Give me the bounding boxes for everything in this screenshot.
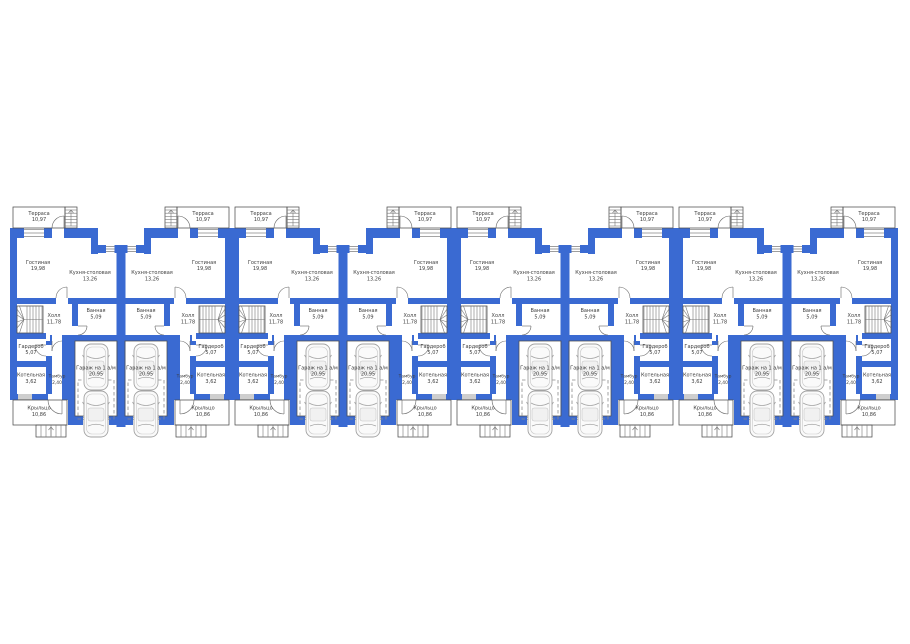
room-area-living: 19,98: [197, 266, 211, 272]
room-area-living: 19,98: [697, 266, 711, 272]
room-label-bath: Ванная: [580, 308, 599, 314]
room-label-boiler: Котельная: [461, 373, 489, 379]
room-area-boiler: 3,62: [469, 379, 480, 385]
unit-3: Терраса10,97Гостиная19,98Кухня-столовая1…: [232, 207, 343, 437]
room-label-hall: Холл: [48, 313, 61, 319]
room-label-porch: Крыльцо: [635, 406, 658, 412]
unit-7: Терраса10,97Гостиная19,98Кухня-столовая1…: [676, 207, 787, 437]
room-area-terrace: 10,97: [196, 217, 210, 223]
room-area-porch: 10,86: [698, 412, 712, 418]
room-label-tambour: Тамбур: [620, 373, 638, 380]
room-area-boiler: 3,62: [691, 379, 702, 385]
room-label-living: Гостиная: [636, 260, 660, 266]
room-label-bath: Ванная: [86, 308, 105, 314]
room-area-wardrobe: 5,07: [691, 350, 702, 356]
room-area-wardrobe: 5,07: [427, 350, 438, 356]
room-area-terrace: 10,97: [254, 217, 268, 223]
room-area-living: 19,98: [253, 266, 267, 272]
room-label-kitchen: Кухня-столовая: [353, 270, 395, 276]
room-area-boiler: 3,62: [427, 379, 438, 385]
room-area-hall: 11,78: [847, 320, 861, 326]
room-label-porch: Крыльцо: [857, 406, 880, 412]
room-area-living: 19,98: [31, 266, 45, 272]
room-area-porch: 10,86: [254, 412, 268, 418]
room-area-bath: 5,09: [362, 315, 373, 321]
room-area-kitchen: 13,26: [749, 277, 763, 283]
room-area-kitchen: 13,26: [145, 277, 159, 283]
floor-plan-drawing: Терраса10,97Гостиная19,98Кухня-столовая1…: [0, 0, 910, 644]
room-label-porch: Крыльцо: [249, 406, 272, 412]
room-area-living: 19,98: [475, 266, 489, 272]
room-label-garage: Гараж на 1 а/м: [298, 365, 338, 371]
room-area-hall: 11,78: [625, 320, 639, 326]
room-area-tambour: 2,40: [402, 380, 412, 386]
room-area-terrace: 10,97: [32, 217, 46, 223]
room-area-bath: 5,09: [140, 315, 151, 321]
room-label-terrace: Терраса: [191, 211, 213, 217]
room-label-terrace: Терраса: [413, 211, 435, 217]
room-label-kitchen: Кухня-столовая: [131, 270, 173, 276]
room-label-bath: Ванная: [358, 308, 377, 314]
room-area-porch: 10,86: [862, 412, 876, 418]
room-label-living: Гостиная: [414, 260, 438, 266]
room-label-bath: Ванная: [802, 308, 821, 314]
room-label-kitchen: Кухня-столовая: [575, 270, 617, 276]
room-label-hall: Холл: [182, 313, 195, 319]
room-area-kitchen: 13,26: [367, 277, 381, 283]
unit-1: Терраса10,97Гостиная19,98Кухня-столовая1…: [10, 207, 121, 437]
room-label-garage: Гараж на 1 а/м: [742, 365, 782, 371]
room-label-wardrobe: Гардероб: [240, 344, 265, 350]
room-area-hall: 11,78: [47, 320, 61, 326]
room-label-porch: Крыльцо: [413, 406, 436, 412]
room-area-wardrobe: 5,07: [205, 350, 216, 356]
room-label-kitchen: Кухня-столовая: [291, 270, 333, 276]
room-label-tambour: Тамбур: [398, 373, 416, 380]
room-area-garage: 20,95: [755, 372, 769, 378]
room-area-porch: 10,86: [640, 412, 654, 418]
room-area-tambour: 2,40: [718, 380, 728, 386]
room-label-wardrobe: Гардероб: [864, 344, 889, 350]
room-area-garage: 20,95: [805, 372, 819, 378]
room-label-hall: Холл: [492, 313, 505, 319]
room-area-garage: 20,95: [533, 372, 547, 378]
room-label-hall: Холл: [270, 313, 283, 319]
room-area-wardrobe: 5,07: [469, 350, 480, 356]
room-label-kitchen: Кухня-столовая: [513, 270, 555, 276]
room-label-hall: Холл: [404, 313, 417, 319]
floor-plan-page: Терраса10,97Гостиная19,98Кухня-столовая1…: [0, 0, 910, 644]
room-area-boiler: 3,62: [871, 379, 882, 385]
room-label-living: Гостиная: [858, 260, 882, 266]
room-area-wardrobe: 5,07: [25, 350, 36, 356]
room-label-boiler: Котельная: [683, 373, 711, 379]
room-area-kitchen: 13,26: [811, 277, 825, 283]
room-label-boiler: Котельная: [863, 373, 891, 379]
room-area-hall: 11,78: [181, 320, 195, 326]
room-area-kitchen: 13,26: [589, 277, 603, 283]
room-area-garage: 20,95: [311, 372, 325, 378]
room-label-living: Гостиная: [192, 260, 216, 266]
room-label-wardrobe: Гардероб: [684, 344, 709, 350]
car-icon: [577, 391, 604, 437]
room-area-porch: 10,86: [196, 412, 210, 418]
room-area-bath: 5,09: [90, 315, 101, 321]
car-icon: [799, 391, 826, 437]
room-area-wardrobe: 5,07: [247, 350, 258, 356]
room-label-garage: Гараж на 1 а/м: [348, 365, 388, 371]
car-icon: [355, 391, 382, 437]
room-area-kitchen: 13,26: [527, 277, 541, 283]
room-label-boiler: Котельная: [419, 373, 447, 379]
room-label-bath: Ванная: [752, 308, 771, 314]
unit-8: Терраса10,97Гостиная19,98Кухня-столовая1…: [787, 207, 898, 437]
car-icon: [305, 391, 332, 437]
car-icon: [527, 391, 554, 437]
room-area-boiler: 3,62: [649, 379, 660, 385]
room-label-boiler: Котельная: [197, 373, 225, 379]
room-area-porch: 10,86: [418, 412, 432, 418]
room-label-living: Гостиная: [248, 260, 272, 266]
unit-4: Терраса10,97Гостиная19,98Кухня-столовая1…: [343, 207, 454, 437]
room-label-tambour: Тамбур: [714, 373, 732, 380]
room-area-garage: 20,95: [583, 372, 597, 378]
room-label-wardrobe: Гардероб: [198, 344, 223, 350]
room-area-garage: 20,95: [89, 372, 103, 378]
room-area-bath: 5,09: [806, 315, 817, 321]
room-area-wardrobe: 5,07: [649, 350, 660, 356]
room-label-garage: Гараж на 1 а/м: [570, 365, 610, 371]
room-area-hall: 11,78: [403, 320, 417, 326]
room-label-garage: Гараж на 1 а/м: [520, 365, 560, 371]
room-area-garage: 20,95: [139, 372, 153, 378]
room-label-hall: Холл: [626, 313, 639, 319]
unit-5: Терраса10,97Гостиная19,98Кухня-столовая1…: [454, 207, 565, 437]
room-area-terrace: 10,97: [698, 217, 712, 223]
room-area-tambour: 2,40: [846, 380, 856, 386]
room-label-kitchen: Кухня-столовая: [735, 270, 777, 276]
room-area-terrace: 10,97: [640, 217, 654, 223]
room-label-hall: Холл: [848, 313, 861, 319]
room-label-boiler: Котельная: [641, 373, 669, 379]
room-label-boiler: Котельная: [239, 373, 267, 379]
room-label-garage: Гараж на 1 а/м: [792, 365, 832, 371]
room-area-living: 19,98: [863, 266, 877, 272]
unit-6: Терраса10,97Гостиная19,98Кухня-столовая1…: [565, 207, 676, 437]
room-label-terrace: Терраса: [635, 211, 657, 217]
room-label-bath: Ванная: [308, 308, 327, 314]
room-label-wardrobe: Гардероб: [18, 344, 43, 350]
car-icon: [749, 391, 776, 437]
room-label-living: Гостиная: [470, 260, 494, 266]
unit-2: Терраса10,97Гостиная19,98Кухня-столовая1…: [121, 207, 232, 437]
room-label-living: Гостиная: [692, 260, 716, 266]
room-area-porch: 10,86: [476, 412, 490, 418]
room-area-tambour: 2,40: [496, 380, 506, 386]
room-label-hall: Холл: [714, 313, 727, 319]
room-label-kitchen: Кухня-столовая: [797, 270, 839, 276]
room-label-tambour: Тамбур: [492, 373, 510, 380]
room-area-boiler: 3,62: [25, 379, 36, 385]
room-area-boiler: 3,62: [205, 379, 216, 385]
room-label-garage: Гараж на 1 а/м: [76, 365, 116, 371]
room-area-terrace: 10,97: [476, 217, 490, 223]
room-area-bath: 5,09: [534, 315, 545, 321]
room-label-bath: Ванная: [136, 308, 155, 314]
room-area-bath: 5,09: [312, 315, 323, 321]
room-label-boiler: Котельная: [17, 373, 45, 379]
room-label-porch: Крыльцо: [191, 406, 214, 412]
room-label-porch: Крыльцо: [693, 406, 716, 412]
room-area-kitchen: 13,26: [83, 277, 97, 283]
room-label-wardrobe: Гардероб: [642, 344, 667, 350]
room-area-boiler: 3,62: [247, 379, 258, 385]
room-area-terrace: 10,97: [862, 217, 876, 223]
room-label-tambour: Тамбур: [842, 373, 860, 380]
room-label-tambour: Тамбур: [270, 373, 288, 380]
room-area-living: 19,98: [419, 266, 433, 272]
car-icon: [133, 391, 160, 437]
room-label-tambour: Тамбур: [48, 373, 66, 380]
room-label-living: Гостиная: [26, 260, 50, 266]
room-area-terrace: 10,97: [418, 217, 432, 223]
room-area-living: 19,98: [641, 266, 655, 272]
room-area-hall: 11,78: [491, 320, 505, 326]
car-icon: [83, 391, 110, 437]
room-area-kitchen: 13,26: [305, 277, 319, 283]
room-area-wardrobe: 5,07: [871, 350, 882, 356]
room-area-bath: 5,09: [756, 315, 767, 321]
room-area-tambour: 2,40: [274, 380, 284, 386]
room-label-wardrobe: Гардероб: [462, 344, 487, 350]
room-area-hall: 11,78: [713, 320, 727, 326]
room-label-porch: Крыльцо: [471, 406, 494, 412]
room-label-terrace: Терраса: [857, 211, 879, 217]
room-area-tambour: 2,40: [52, 380, 62, 386]
room-label-terrace: Терраса: [27, 211, 49, 217]
room-label-bath: Ванная: [530, 308, 549, 314]
room-area-porch: 10,86: [32, 412, 46, 418]
room-label-garage: Гараж на 1 а/м: [126, 365, 166, 371]
room-area-tambour: 2,40: [180, 380, 190, 386]
room-area-garage: 20,95: [361, 372, 375, 378]
room-area-bath: 5,09: [584, 315, 595, 321]
room-label-kitchen: Кухня-столовая: [69, 270, 111, 276]
room-label-porch: Крыльцо: [27, 406, 50, 412]
room-area-tambour: 2,40: [624, 380, 634, 386]
room-label-tambour: Тамбур: [176, 373, 194, 380]
room-label-wardrobe: Гардероб: [420, 344, 445, 350]
room-label-terrace: Терраса: [249, 211, 271, 217]
room-label-terrace: Терраса: [471, 211, 493, 217]
room-area-hall: 11,78: [269, 320, 283, 326]
room-label-terrace: Терраса: [693, 211, 715, 217]
